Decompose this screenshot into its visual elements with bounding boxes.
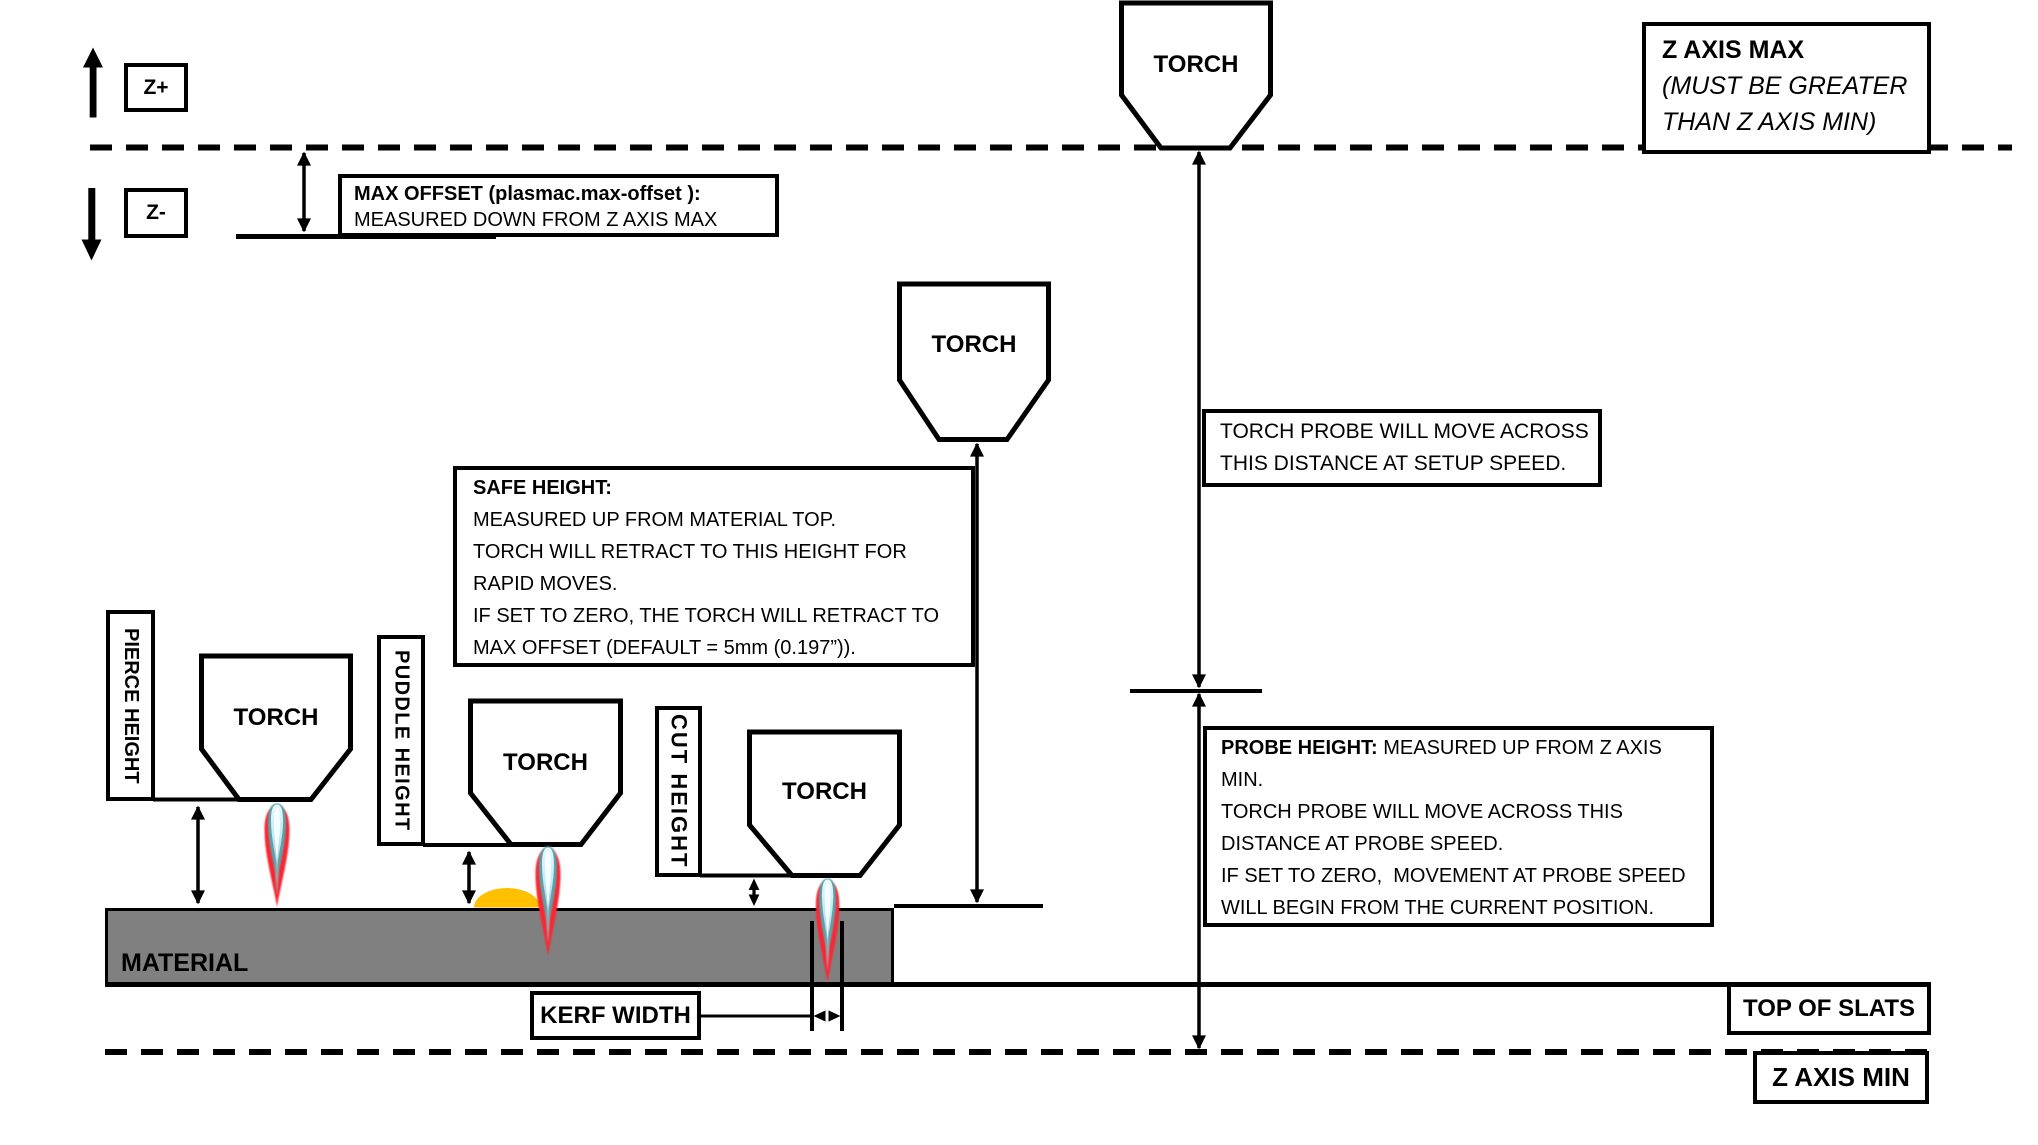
svg-text:TORCH: TORCH bbox=[1154, 51, 1239, 78]
svg-text:TORCH: TORCH bbox=[932, 331, 1017, 358]
svg-text:TORCH: TORCH bbox=[782, 778, 867, 805]
svg-text:TORCH: TORCH bbox=[503, 749, 588, 776]
svg-text:TORCH: TORCH bbox=[234, 704, 319, 731]
